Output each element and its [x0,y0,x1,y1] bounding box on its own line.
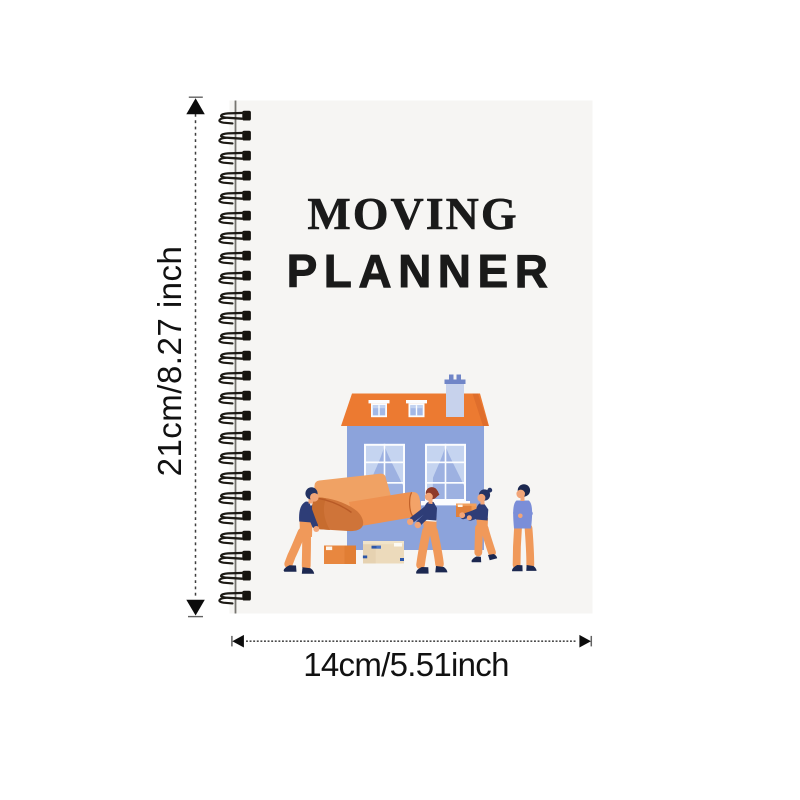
svg-text:14cm/5.51inch: 14cm/5.51inch [303,646,509,683]
svg-text:PLANNER: PLANNER [287,245,555,297]
svg-text:MOVING: MOVING [307,188,518,239]
svg-text:21cm/8.27 inch: 21cm/8.27 inch [151,246,188,477]
